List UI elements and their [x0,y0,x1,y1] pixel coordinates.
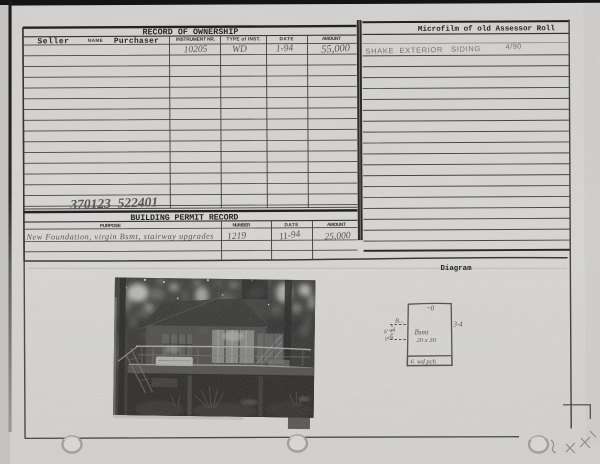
svg-text:DATE: DATE [284,222,298,227]
svg-text:Diagram: Diagram [441,265,473,273]
svg-text:4/90: 4/90 [505,42,522,51]
svg-text:1219: 1219 [227,231,247,242]
svg-text:DATE: DATE [279,36,293,41]
svg-text:B...: B... [395,318,404,325]
svg-text:INSTRUMENT NR.: INSTRUMENT NR. [176,37,215,42]
svg-text:6 wd pch: 6 wd pch [411,359,437,366]
svg-text:10205: 10205 [184,45,208,56]
svg-text:AMOUNT: AMOUNT [322,36,341,41]
svg-text:Microfilm of old Assessor Roll: Microfilm of old Assessor Roll [418,25,555,34]
svg-text:AMOUNT: AMOUNT [327,222,346,227]
svg-text:25,000: 25,000 [324,231,351,243]
svg-text:55,000: 55,000 [321,43,351,56]
svg-text:370123 522401: 370123 522401 [69,194,158,212]
svg-text:3-4: 3-4 [453,322,464,329]
svg-text:WD: WD [232,44,247,55]
svg-text:~0: ~0 [427,306,435,313]
svg-text:TYPE of INST.: TYPE of INST. [226,36,260,41]
svg-text:NUMBER: NUMBER [232,222,251,227]
svg-text:20 x 30: 20 x 30 [417,337,437,344]
svg-text:New Foundation, virgin Bsmt, s: New Foundation, virgin Bsmt, stairway up… [25,232,213,242]
svg-text:NAME: NAME [88,38,103,43]
svg-text:Bsmt: Bsmt [415,329,430,337]
svg-text:1-94: 1-94 [276,44,294,55]
svg-text:PURPOSE: PURPOSE [100,223,121,228]
